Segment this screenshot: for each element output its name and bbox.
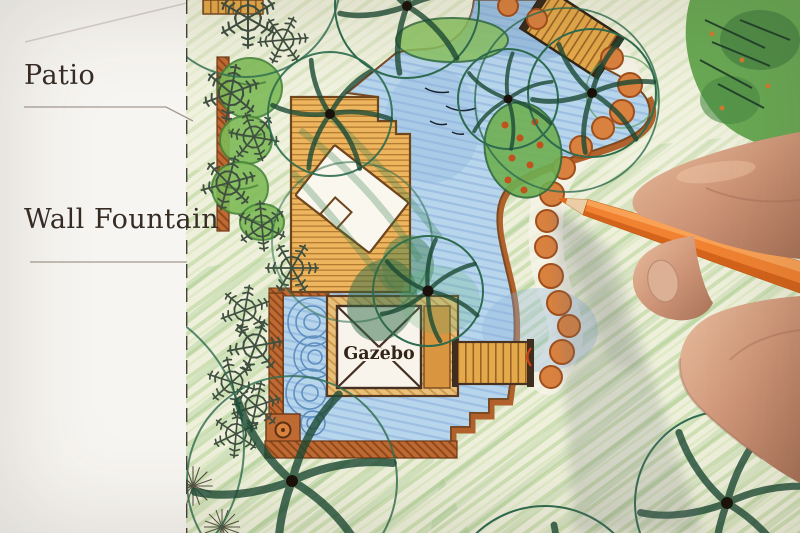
photo-landscape-plan: Gazebo (0, 0, 800, 533)
patio-label: Patio (24, 60, 95, 91)
boardwalk (452, 339, 534, 387)
shrub-top-clump (396, 18, 508, 62)
wall-fountain-label: Wall Fountain (24, 204, 219, 235)
landscape-plan-drawing: Gazebo (0, 0, 800, 533)
gazebo-label: Gazebo (343, 344, 414, 364)
